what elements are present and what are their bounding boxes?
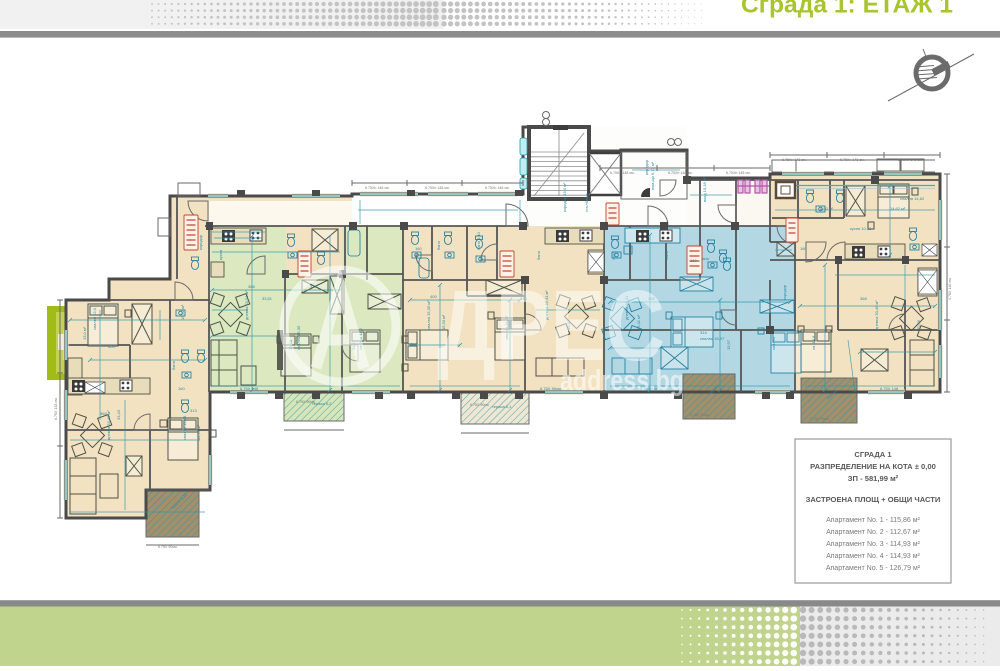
svg-text:дневна 33,51 м²: дневна 33,51 м² — [244, 290, 249, 320]
svg-text:баня: баня — [664, 251, 669, 260]
svg-text:коридор: коридор — [782, 284, 787, 300]
svg-text:кухня 10,18: кухня 10,18 — [850, 226, 872, 231]
svg-text:6.75Хн 148 см.: 6.75Хн 148 см. — [365, 186, 390, 190]
svg-text:коридор: коридор — [198, 234, 203, 250]
svg-text:6.75Х 90см.: 6.75Х 90см. — [690, 413, 710, 417]
svg-text:30,46: 30,46 — [916, 319, 921, 330]
svg-text:6.75Х 90см.: 6.75Х 90см. — [158, 545, 178, 549]
svg-text:РАЗПРЕДЕЛЕНИЕ НА КОТА ± 0,00: РАЗПРЕДЕЛЕНИЕ НА КОТА ± 0,00 — [810, 462, 936, 471]
svg-text:ЗП - 581,99 м²: ЗП - 581,99 м² — [848, 474, 899, 483]
svg-text:6.75Х 90см.: 6.75Х 90см. — [540, 386, 562, 391]
svg-text:тераса 6,1: тераса 6,1 — [492, 404, 512, 409]
svg-text:address.bg: address.bg — [560, 365, 684, 397]
svg-text:сп. 14,6: сп. 14,6 — [811, 335, 816, 350]
svg-text:Апартамент No. 1 - 115,86 м²: Апартамент No. 1 - 115,86 м² — [826, 517, 920, 524]
svg-text:6.75Х 90см.: 6.75Х 90см. — [296, 400, 316, 404]
svg-text:коридор: коридор — [644, 159, 649, 175]
svg-text:4,50 м²: 4,50 м² — [820, 206, 834, 211]
svg-text:дневна 33,43 м²: дневна 33,43 м² — [106, 410, 111, 440]
svg-text:160: 160 — [800, 246, 807, 251]
svg-text:6.75Хн 148 см.: 6.75Хн 148 см. — [782, 158, 807, 162]
svg-text:дневна 30,46 м²: дневна 30,46 м² — [874, 300, 879, 330]
svg-text:16,62 м²: 16,62 м² — [180, 304, 185, 320]
svg-text:стълбище: стълбище — [584, 193, 589, 212]
svg-text:13,0 м²: 13,0 м² — [82, 326, 87, 340]
svg-text:33,43: 33,43 — [116, 409, 121, 420]
svg-text:Апартамент No. 2 - 112,67 м²: Апартамент No. 2 - 112,67 м² — [826, 529, 920, 536]
svg-text:6.75Х 90см.: 6.75Х 90см. — [470, 403, 490, 407]
svg-text:кухня: кухня — [218, 250, 223, 260]
svg-text:6.75Хн 148 см.: 6.75Хн 148 см. — [485, 186, 510, 190]
svg-text:спалня 14,39: спалня 14,39 — [182, 415, 187, 440]
svg-text:6.75Х 148: 6.75Х 148 — [880, 386, 899, 391]
svg-text:314: 314 — [700, 330, 707, 335]
svg-text:спалня 15,97: спалня 15,97 — [700, 336, 725, 341]
svg-text:6.75Хн 148 см.: 6.75Хн 148 см. — [726, 171, 751, 175]
svg-text:6.75Хн 148 см.: 6.75Хн 148 см. — [610, 171, 635, 175]
svg-text:33,51: 33,51 — [262, 296, 273, 301]
svg-text:6.75Х 90см.: 6.75Х 90см. — [810, 417, 830, 421]
svg-text:СГРАДА 1: СГРАДА 1 — [854, 450, 892, 459]
svg-text:14,39 м²: 14,39 м² — [196, 424, 201, 440]
svg-text:пом-що 6,71 м²: пом-що 6,71 м² — [650, 161, 655, 190]
svg-text:6.75Хн 148 см.: 6.75Хн 148 см. — [840, 158, 865, 162]
svg-text:368: 368 — [248, 284, 255, 289]
svg-text:спалня: спалня — [771, 337, 776, 350]
svg-text:4.78Х 140 см.: 4.78Х 140 см. — [948, 277, 952, 300]
svg-text:спалня 15,30: спалня 15,30 — [296, 325, 301, 350]
svg-text:ЗАСТРОЕНА ПЛОЩ + ОБЩИ ЧАСТИ: ЗАСТРОЕНА ПЛОЩ + ОБЩИ ЧАСТИ — [806, 495, 941, 504]
svg-text:баня 4,40: баня 4,40 — [476, 232, 481, 250]
svg-text:15,97: 15,97 — [726, 339, 731, 350]
svg-text:баня: баня — [171, 361, 176, 370]
svg-text:Сграда 1: ЕТАЖ 1: Сграда 1: ЕТАЖ 1 — [741, 0, 953, 19]
svg-text:тоал.: тоал. — [611, 250, 616, 260]
svg-text:6.75Х 148 см.: 6.75Х 148 см. — [54, 397, 58, 420]
svg-text:коридор 15,0 м²: коридор 15,0 м² — [562, 182, 567, 212]
svg-text:вход 10,18 м²: вход 10,18 м² — [702, 176, 707, 202]
svg-text:6.75Хн 148 см.: 6.75Хн 148 см. — [425, 186, 450, 190]
svg-text:баня: баня — [536, 251, 541, 260]
svg-text:6.75Х 148: 6.75Х 148 — [240, 386, 259, 391]
svg-text:160: 160 — [415, 246, 422, 251]
svg-text:14,62 м²: 14,62 м² — [890, 206, 906, 211]
svg-text:баня: баня — [436, 241, 441, 250]
svg-text:Апартамент No. 4 - 114,93 м²: Апартамент No. 4 - 114,93 м² — [826, 553, 920, 560]
svg-text:400: 400 — [108, 344, 115, 349]
svg-text:6.75Хн 148 см.: 6.75Хн 148 см. — [668, 171, 693, 175]
svg-text:Апартамент No. 5 - 126,79 м²: Апартамент No. 5 - 126,79 м² — [826, 565, 921, 572]
svg-text:160: 160 — [178, 386, 185, 391]
svg-text:368: 368 — [860, 296, 867, 301]
svg-text:368: 368 — [100, 411, 107, 416]
svg-text:313: 313 — [190, 408, 197, 413]
svg-text:спалня 13,0: спалня 13,0 — [92, 307, 97, 330]
svg-text:спалня 14,62: спалня 14,62 — [900, 196, 925, 201]
svg-text:314: 314 — [310, 284, 317, 289]
svg-text:спалня 15,30 м²: спалня 15,30 м² — [426, 300, 431, 330]
svg-text:Апартамент No. 3 - 114,93 м²: Апартамент No. 3 - 114,93 м² — [826, 541, 920, 548]
svg-text:160: 160 — [690, 258, 697, 263]
svg-text:6.75Хн 148 см.: 6.75Хн 148 см. — [898, 158, 923, 162]
